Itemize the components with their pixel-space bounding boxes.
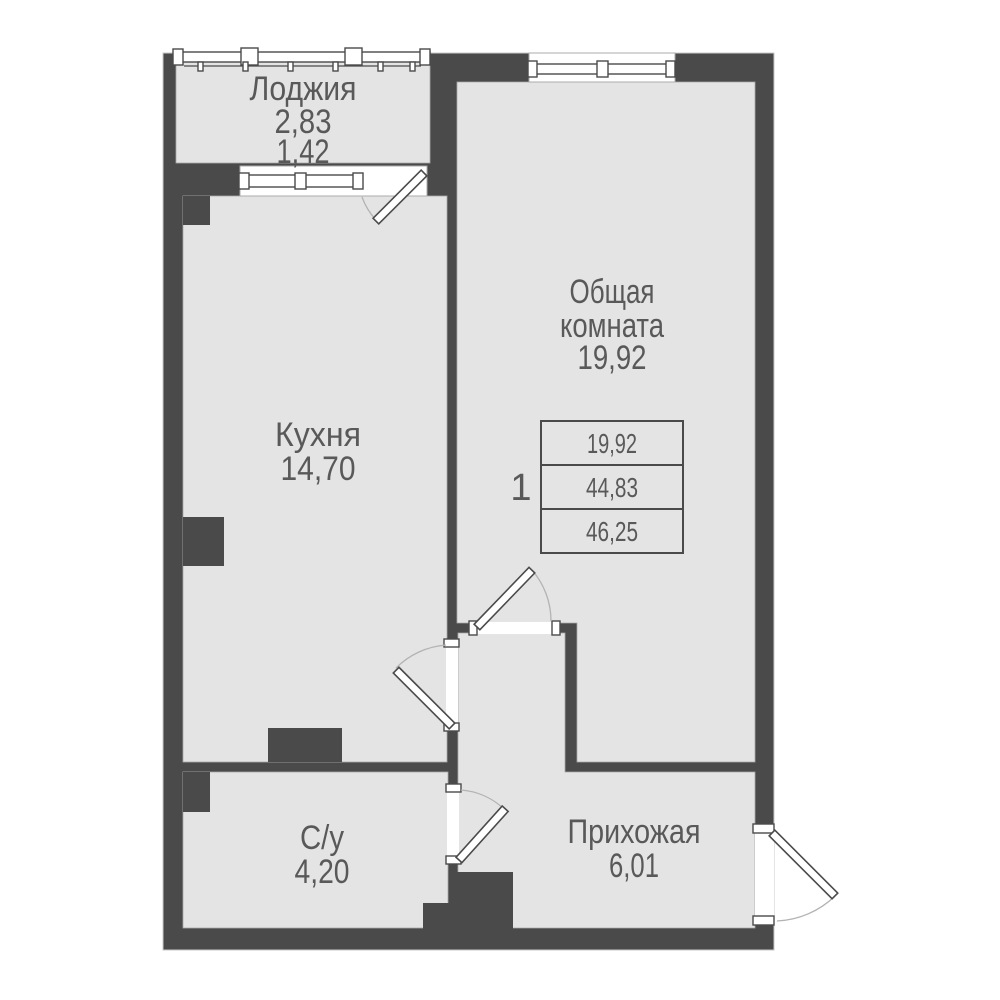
door-opening	[446, 647, 458, 723]
glazing-band	[175, 52, 430, 62]
door-jamb	[552, 621, 560, 635]
window-mullion	[295, 173, 306, 189]
wall-step-kitchen-top	[183, 196, 210, 225]
area-table-total: 46,25	[586, 516, 638, 547]
glazing-post	[173, 49, 183, 65]
floor-plan-svg: 1 19,92 44,83 46,25 Лоджия 2,83 1,42 Кух…	[0, 0, 1000, 1000]
door-opening	[477, 622, 552, 634]
wall-pillar-bathroom	[183, 772, 210, 812]
window-mullion	[597, 61, 608, 77]
wall-block-kitchen-bottom	[268, 728, 342, 762]
door-swing-arc	[777, 896, 835, 921]
glazing-post	[345, 48, 362, 65]
door-jamb	[753, 824, 774, 833]
hallway-label: Прихожая	[568, 813, 701, 851]
wall-pillar-kitchen	[183, 517, 224, 566]
door-leaf	[769, 830, 838, 899]
area-table-living: 19,92	[587, 428, 637, 459]
bathroom-label: С/у	[300, 819, 344, 857]
window-cap	[666, 61, 675, 77]
door-jamb	[444, 639, 459, 647]
loggia-area-reduced: 1,42	[277, 133, 330, 171]
window-cap	[239, 173, 249, 189]
kitchen-label: Кухня	[275, 416, 361, 454]
kitchen-area: 14,70	[281, 450, 356, 488]
living-window	[528, 53, 675, 82]
living-label-line1: Общая	[570, 273, 655, 311]
window-cap	[353, 173, 363, 189]
area-table-without-loggia: 44,83	[586, 472, 638, 503]
entrance-door	[753, 824, 838, 925]
living-area: 19,92	[578, 339, 647, 377]
hallway-area: 6,01	[609, 847, 659, 885]
bathroom-area: 4,20	[295, 853, 350, 891]
wall-shaft-hallway	[455, 872, 513, 932]
wall-block-bathroom-corner	[423, 903, 455, 932]
door-jamb	[446, 784, 461, 792]
flat-number: 1	[510, 467, 531, 509]
floor-plan: 1 19,92 44,83 46,25 Лоджия 2,83 1,42 Кух…	[0, 0, 1000, 1000]
door-jamb	[753, 916, 774, 925]
glazing-post	[420, 49, 430, 65]
door-opening	[755, 833, 774, 917]
door-opening	[447, 792, 459, 856]
window-cap	[528, 61, 537, 77]
